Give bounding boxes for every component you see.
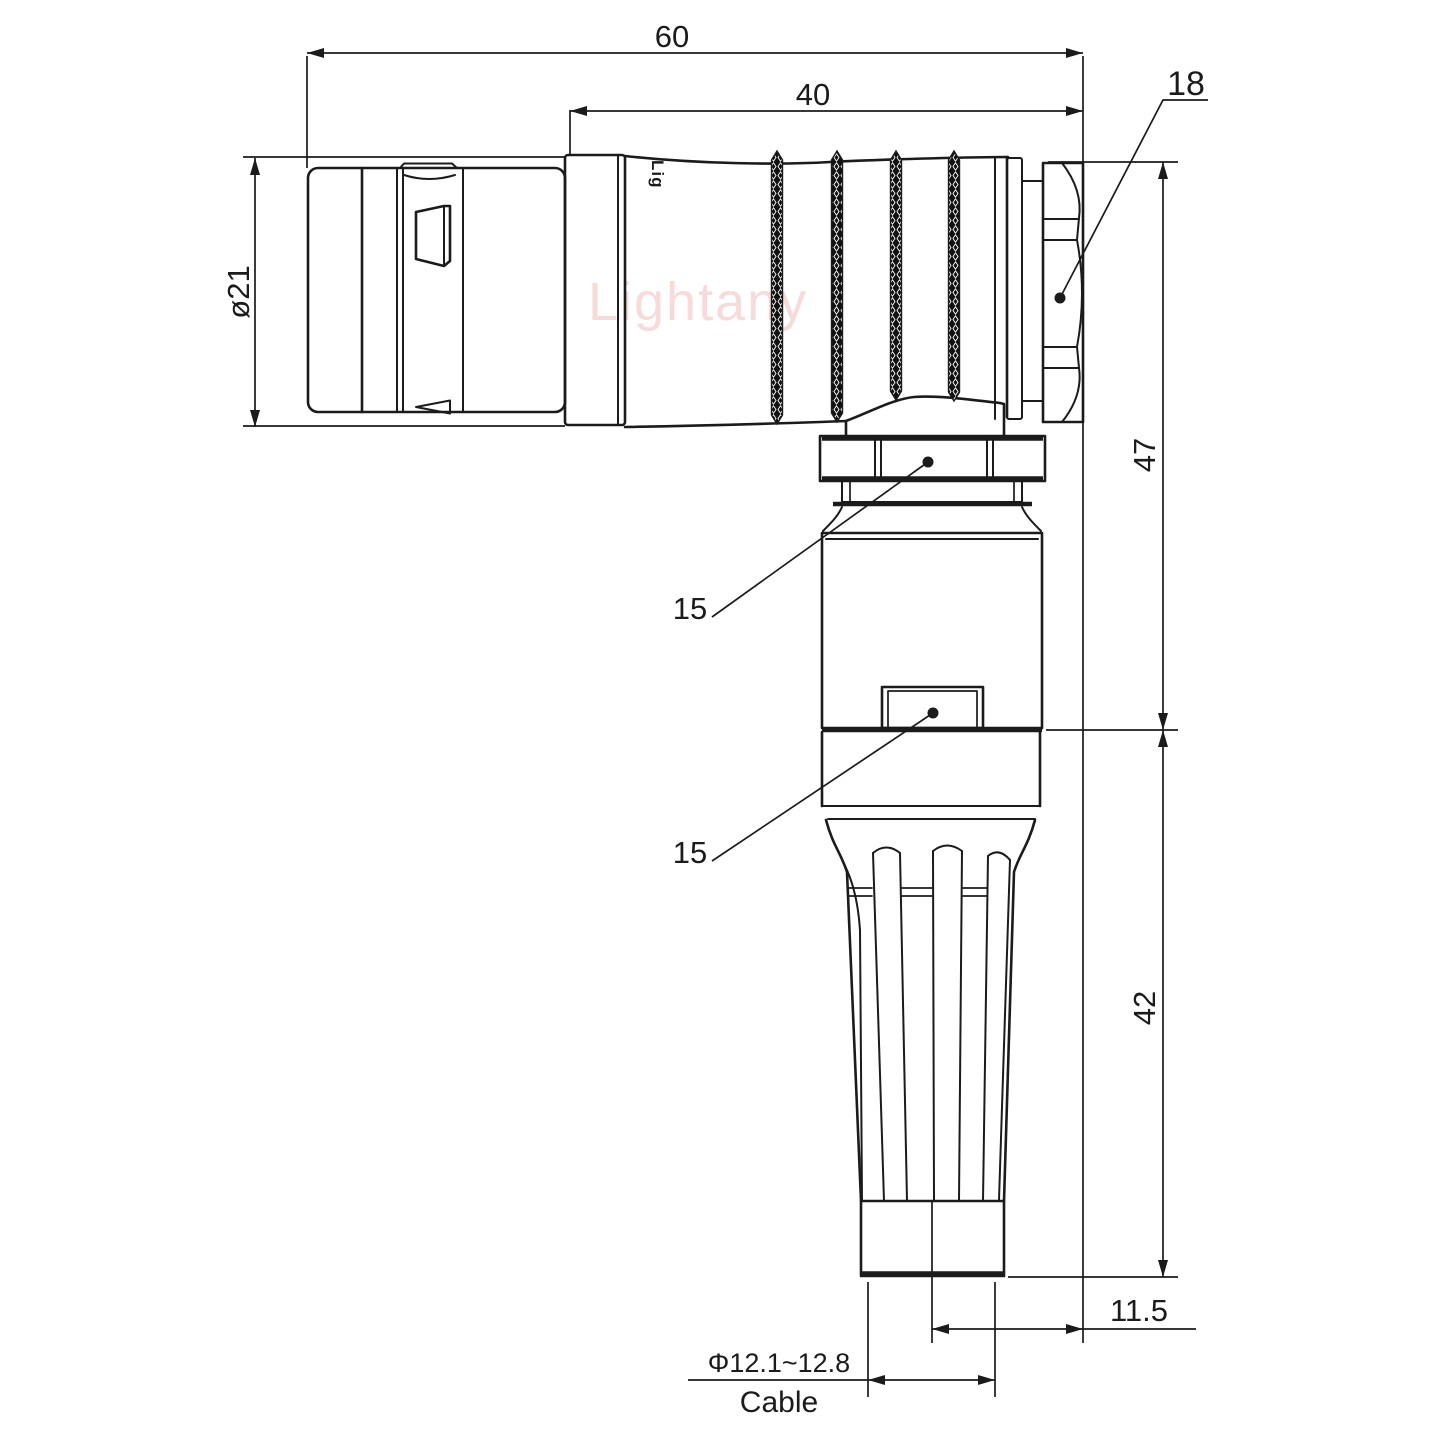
dim-47-label: 47 [1127, 438, 1162, 472]
coupling-nut [820, 436, 1045, 481]
dimension-lines: 60 40 ø21 47 42 [221, 19, 1208, 1419]
cable-label: Cable [740, 1386, 818, 1419]
knurl-band [832, 151, 843, 422]
leader-nut-18: 18 [1055, 65, 1209, 304]
dim-15-upper-label: 15 [673, 591, 707, 626]
dim-40-label: 40 [796, 77, 830, 112]
dim-42-label: 42 [1127, 991, 1162, 1025]
neck-ring [823, 481, 1041, 531]
cable-diameter-range-label: Φ12.1~12.8 [708, 1348, 850, 1378]
dim-front-diameter: ø21 [221, 158, 260, 427]
dim-cable-diameter: Φ12.1~12.8 Cable [688, 1348, 995, 1419]
dim-11-5-label: 11.5 [1110, 1293, 1168, 1328]
dim-barrel-length: 40 [570, 77, 1083, 116]
dim-18-label: 18 [1167, 65, 1205, 103]
knurl-band [949, 151, 960, 401]
knurl-band [772, 151, 783, 424]
dim-60-label: 60 [655, 19, 689, 54]
dim-height-lower: 42 [1127, 730, 1168, 1277]
dim-dia21-label: ø21 [221, 265, 256, 318]
rear-rings [1007, 158, 1043, 419]
part-marking-text: Lig [648, 160, 667, 189]
latch-window [416, 206, 450, 266]
elbow-hump [846, 397, 1004, 436]
front-shell [308, 164, 565, 414]
backshell-boss [882, 687, 983, 728]
backshell-body [822, 533, 1042, 819]
dim-height-upper: 47 [1127, 162, 1168, 730]
dim-15-lower-label: 15 [673, 835, 707, 870]
strain-relief [826, 820, 1035, 1201]
drawing-page: Lightany [0, 0, 1440, 1440]
dim-total-length: 60 [307, 19, 1083, 58]
knurl-band [891, 151, 902, 400]
dim-cable-offset: 11.5 [932, 1293, 1196, 1334]
technical-drawing-canvas: Lightany [0, 0, 1440, 1440]
